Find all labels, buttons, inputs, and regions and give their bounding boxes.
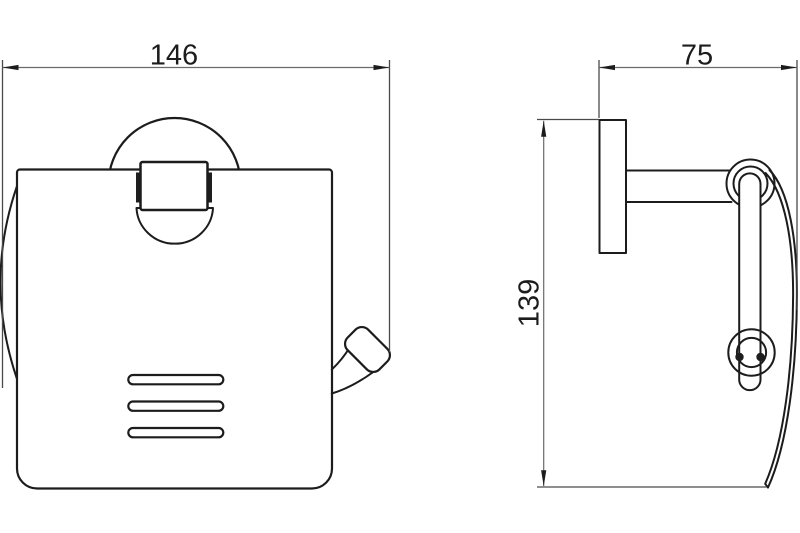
arrowhead-right [781,65,797,70]
cover-profile-inner [765,173,793,488]
dim-label-overall-width: 146 [150,40,198,72]
arrowhead-left [599,65,615,70]
wall-plate [600,120,627,253]
side-view [600,120,797,488]
latch-button [141,162,208,210]
dim-label-depth: 75 [681,40,713,72]
side-knob-pin-left [735,353,743,361]
side-knob-pin-right [756,353,764,361]
front-view [1,118,394,489]
arrowhead-top [541,121,546,137]
drawing-svg: 146 75 139 [0,0,800,533]
arrowhead-left [3,65,19,70]
cover-body [17,170,332,489]
dim-label-height: 139 [514,279,546,327]
vent-slot-2 [128,402,223,411]
mounting-arm [626,171,732,203]
technical-drawing-canvas: 146 75 139 [0,0,800,533]
spindle-arm-lower [332,372,374,394]
arrowhead-right [374,65,390,70]
spindle-knob [341,323,393,375]
arrowhead-bottom [541,470,546,486]
vent-slot-1 [128,375,223,384]
vent-slot-3 [128,428,223,437]
